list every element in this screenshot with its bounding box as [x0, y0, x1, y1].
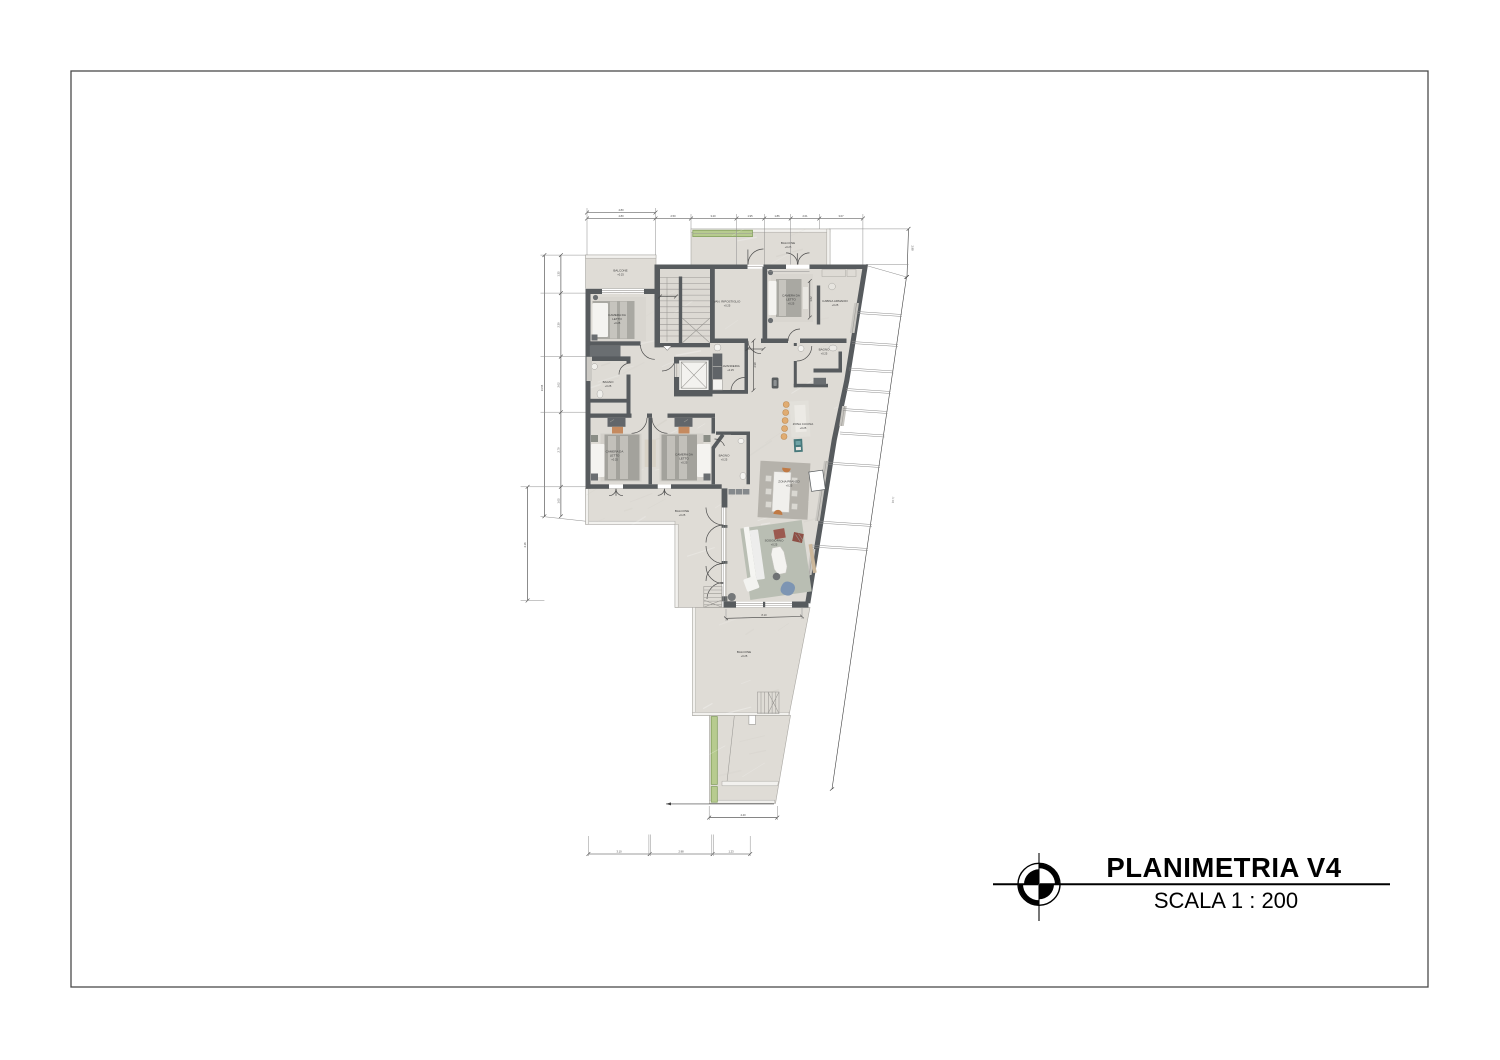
- svg-text:+0.25: +0.25: [679, 513, 686, 517]
- svg-text:4.16: 4.16: [523, 542, 527, 548]
- svg-text:1.35: 1.35: [556, 271, 560, 277]
- svg-text:ZONA CUCINA: ZONA CUCINA: [793, 422, 814, 426]
- svg-text:2.98: 2.98: [911, 245, 915, 251]
- svg-text:1.05: 1.05: [556, 498, 560, 504]
- svg-text:SOGGIORNO: SOGGIORNO: [765, 539, 785, 543]
- svg-text:BALCONE: BALCONE: [613, 269, 627, 273]
- svg-text:+0.25: +0.25: [832, 303, 839, 307]
- svg-text:BAGNO: BAGNO: [819, 348, 831, 352]
- svg-text:BAGNO: BAGNO: [719, 454, 731, 458]
- svg-text:3.62: 3.62: [809, 296, 813, 302]
- svg-text:BALCONE: BALCONE: [781, 241, 795, 245]
- svg-text:+0.25: +0.25: [788, 302, 795, 306]
- svg-text:2.98: 2.98: [678, 850, 684, 854]
- svg-text:LETTO: LETTO: [612, 317, 622, 321]
- svg-text:+0.25: +0.25: [800, 426, 807, 430]
- svg-text:CABINA ARMADIO: CABINA ARMADIO: [822, 299, 848, 303]
- svg-text:2.98: 2.98: [753, 362, 757, 368]
- svg-text:1.86: 1.86: [774, 214, 780, 218]
- svg-text:BAGNO: BAGNO: [603, 380, 615, 384]
- svg-text:LETTO: LETTO: [610, 454, 620, 458]
- svg-text:2.30: 2.30: [556, 322, 560, 328]
- svg-text:3.07: 3.07: [838, 214, 844, 218]
- svg-text:LETTO: LETTO: [679, 457, 689, 461]
- svg-text:4.80: 4.80: [618, 208, 624, 212]
- svg-text:+0.25: +0.25: [611, 458, 618, 462]
- svg-text:+0.25: +0.25: [727, 368, 734, 372]
- svg-text:2.50: 2.50: [670, 214, 676, 218]
- svg-text:2.70: 2.70: [556, 447, 560, 453]
- svg-text:+0.25: +0.25: [724, 304, 731, 308]
- svg-text:3.10: 3.10: [616, 850, 622, 854]
- svg-text:4.40: 4.40: [740, 813, 746, 817]
- svg-text:2.02: 2.02: [556, 382, 560, 388]
- svg-text:BALCONE: BALCONE: [737, 650, 751, 654]
- svg-text:2.01: 2.01: [802, 214, 808, 218]
- svg-text:+0.25: +0.25: [741, 654, 748, 658]
- svg-text:+0.25: +0.25: [771, 543, 778, 547]
- svg-text:1.95: 1.95: [747, 214, 753, 218]
- svg-text:+0.25: +0.25: [617, 273, 624, 277]
- svg-text:+0.25: +0.25: [614, 321, 621, 325]
- svg-text:LETTO: LETTO: [786, 298, 796, 302]
- svg-text:BALCONE: BALCONE: [675, 509, 689, 513]
- svg-text:ZONA PRANZO: ZONA PRANZO: [778, 480, 800, 484]
- svg-text:+0.25: +0.25: [821, 352, 828, 356]
- svg-text:+0.25: +0.25: [681, 461, 688, 465]
- svg-text:+0.25: +0.25: [721, 458, 728, 462]
- svg-text:13.55: 13.55: [540, 384, 544, 391]
- svg-text:PLANIMETRIA V4: PLANIMETRIA V4: [1106, 852, 1341, 883]
- svg-text:8.10: 8.10: [761, 613, 767, 617]
- svg-text:+0.25: +0.25: [786, 484, 793, 488]
- svg-text:SCALA 1 : 200: SCALA 1 : 200: [1154, 888, 1298, 913]
- svg-text:4.80: 4.80: [618, 214, 624, 218]
- svg-text:LAVANDERIA: LAVANDERIA: [721, 364, 740, 368]
- svg-text:3.20: 3.20: [710, 214, 716, 218]
- svg-text:VAN. RIPOSTIGLIO: VAN. RIPOSTIGLIO: [714, 300, 741, 304]
- svg-text:1.23: 1.23: [728, 850, 734, 854]
- svg-text:+0.25: +0.25: [605, 384, 612, 388]
